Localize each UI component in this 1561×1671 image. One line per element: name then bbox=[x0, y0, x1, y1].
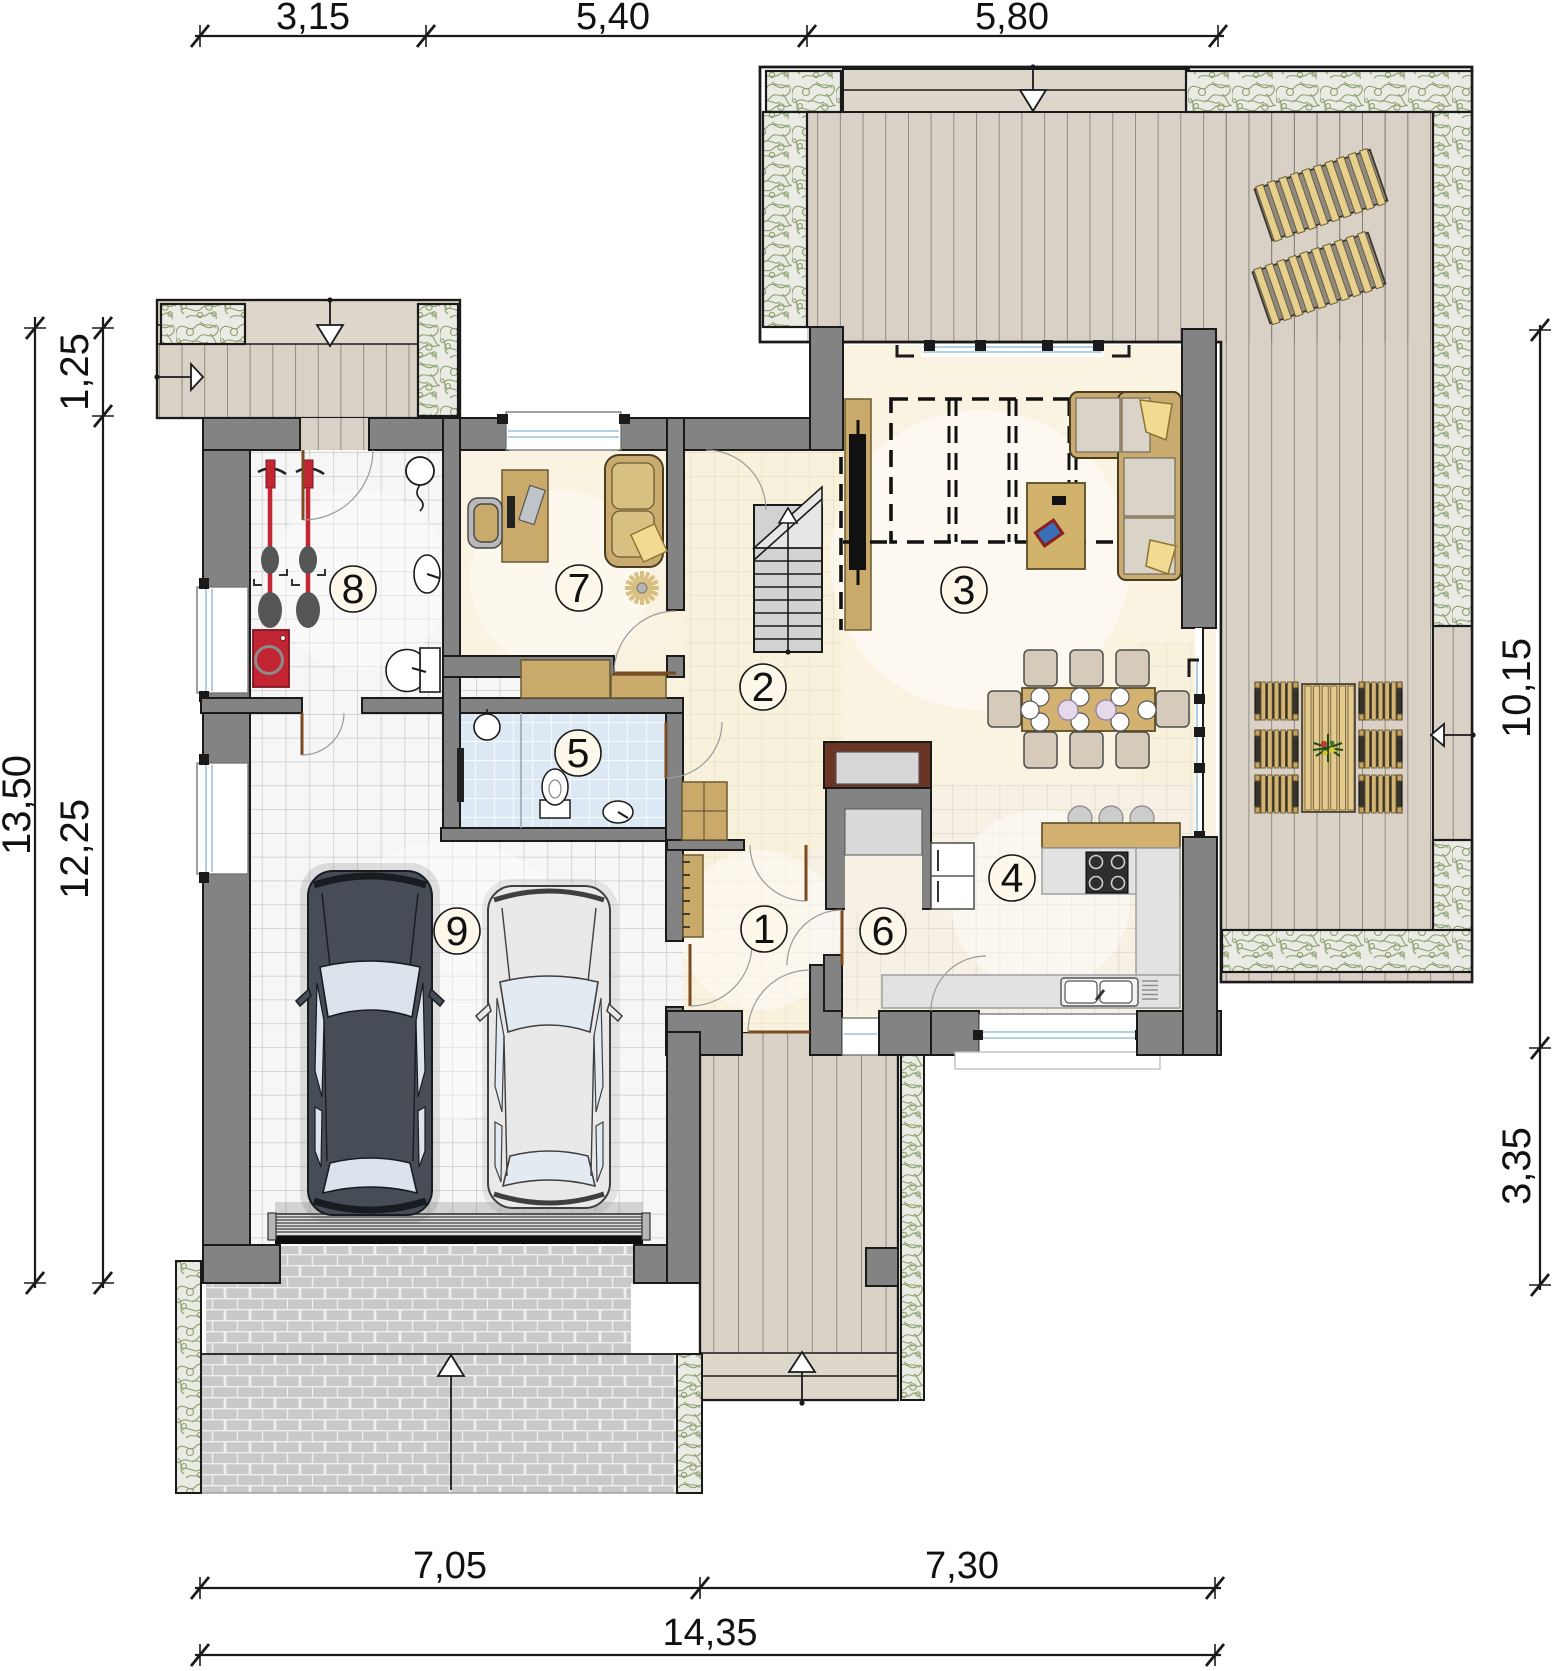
svg-text:3: 3 bbox=[953, 567, 976, 613]
svg-text:7,30: 7,30 bbox=[925, 1545, 999, 1587]
svg-text:3,35: 3,35 bbox=[1495, 1127, 1539, 1205]
svg-text:3,15: 3,15 bbox=[276, 0, 350, 38]
svg-text:4: 4 bbox=[1001, 855, 1024, 901]
svg-text:12,25: 12,25 bbox=[53, 799, 97, 899]
svg-text:14,35: 14,35 bbox=[662, 1612, 757, 1654]
svg-text:5,40: 5,40 bbox=[576, 0, 650, 38]
svg-text:10,15: 10,15 bbox=[1495, 638, 1539, 738]
svg-text:8: 8 bbox=[342, 566, 365, 612]
svg-text:7,05: 7,05 bbox=[413, 1545, 487, 1587]
svg-text:2: 2 bbox=[752, 664, 775, 710]
svg-text:9: 9 bbox=[446, 908, 469, 954]
svg-text:1: 1 bbox=[753, 906, 776, 952]
svg-text:1,25: 1,25 bbox=[53, 333, 97, 411]
svg-text:6: 6 bbox=[872, 908, 895, 954]
svg-text:5: 5 bbox=[567, 730, 590, 776]
svg-text:13,50: 13,50 bbox=[0, 755, 39, 855]
svg-text:7: 7 bbox=[568, 565, 591, 611]
svg-text:5,80: 5,80 bbox=[975, 0, 1049, 38]
